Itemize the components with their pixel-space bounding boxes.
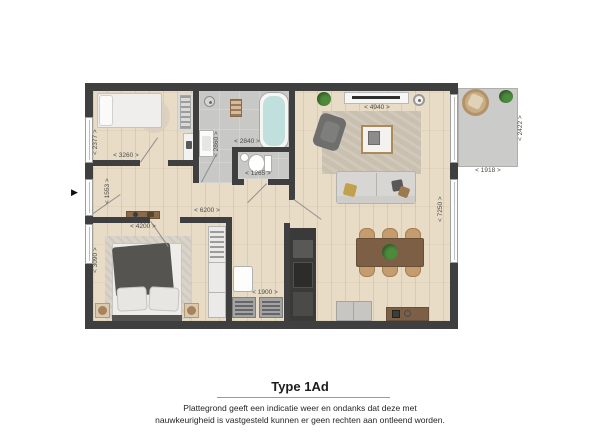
entrance-arrow-icon: ▶	[71, 188, 78, 197]
tv	[352, 96, 400, 99]
desk-item	[186, 141, 192, 149]
front-door	[85, 179, 93, 216]
cabinet-divider	[353, 302, 354, 320]
shower-head-dot	[209, 101, 212, 104]
wall	[232, 147, 295, 152]
dim-living-width: < 4940 >	[359, 105, 395, 112]
bathtub-basin	[263, 96, 285, 146]
bed-pillow-left	[116, 286, 147, 312]
dim-bathroom-depth: < 2860 >	[214, 130, 224, 158]
built-in-oven	[293, 262, 313, 288]
table-plant	[382, 244, 398, 260]
dim-hall-width: < 6200 >	[189, 208, 225, 215]
dim-toilet-width: < 1265 >	[240, 171, 276, 178]
window-living-room	[450, 179, 458, 263]
dryer-grill	[262, 300, 280, 315]
kitchen-sink	[392, 310, 400, 318]
wall	[168, 160, 199, 166]
toilet-hand-basin	[240, 153, 249, 162]
plant	[317, 92, 331, 106]
dim-master-depth: < 3090 >	[93, 246, 103, 274]
wall	[93, 160, 140, 166]
wall	[232, 179, 244, 185]
dim-bathroom-width: < 2840 >	[229, 139, 265, 146]
cooktop-burner	[404, 310, 411, 317]
dim-bedroom2-width: < 3260 >	[108, 153, 144, 160]
plan-title: Type 1Ad	[0, 379, 600, 394]
wall	[284, 223, 290, 321]
kitchen-base-cabinet	[336, 301, 372, 321]
disclaimer: Plattegrond geeft een indicatie weer en …	[0, 402, 600, 427]
radiator	[180, 95, 191, 129]
wardrobe-divider	[208, 292, 226, 293]
disclaimer-line-2: nauwkeurigheid is vastgesteld kunnen er …	[0, 414, 600, 426]
dim-terrace-width: < 1918 >	[470, 168, 506, 175]
wall	[180, 217, 232, 223]
dim-master-width: < 4200 >	[125, 224, 161, 231]
dim-hall-depth: < 1553 >	[105, 177, 115, 205]
coffee-table-decor	[368, 131, 380, 145]
built-in-fridge	[293, 292, 313, 316]
terrace-plant	[499, 90, 513, 103]
fixture-dot	[418, 99, 421, 102]
terrace-sliding-door	[450, 94, 458, 163]
floorplan-page: ▶ < 2377 > < 3260 > < 2840 > < 2860 > < …	[0, 0, 600, 434]
washer-grill	[235, 300, 253, 315]
title-divider	[217, 397, 390, 398]
bed-pillow	[99, 95, 113, 126]
lamp-left	[98, 306, 107, 315]
dim-bedroom2-depth: < 2377 >	[93, 128, 103, 156]
sofa-cushion-divider	[376, 173, 377, 196]
wall	[85, 83, 458, 91]
wardrobe-louver-door	[210, 228, 224, 258]
disclaimer-line-1: Plattegrond geeft een indicatie weer en …	[0, 402, 600, 414]
wall	[193, 91, 199, 183]
wardrobe-divider	[208, 262, 226, 263]
wall	[226, 217, 232, 321]
towel-radiator	[230, 99, 242, 117]
dim-terrace-depth: < 2422 >	[518, 113, 528, 143]
wall	[85, 321, 458, 329]
dim-living-depth: < 7250 >	[438, 194, 448, 224]
sink-basin	[202, 136, 211, 151]
lamp-right	[187, 306, 196, 315]
dim-laundry-width: < 1900 >	[247, 290, 283, 297]
built-in-appliance	[293, 240, 313, 258]
water-heater	[233, 266, 253, 292]
wall	[268, 179, 295, 185]
bed-pillow-right	[148, 286, 179, 312]
